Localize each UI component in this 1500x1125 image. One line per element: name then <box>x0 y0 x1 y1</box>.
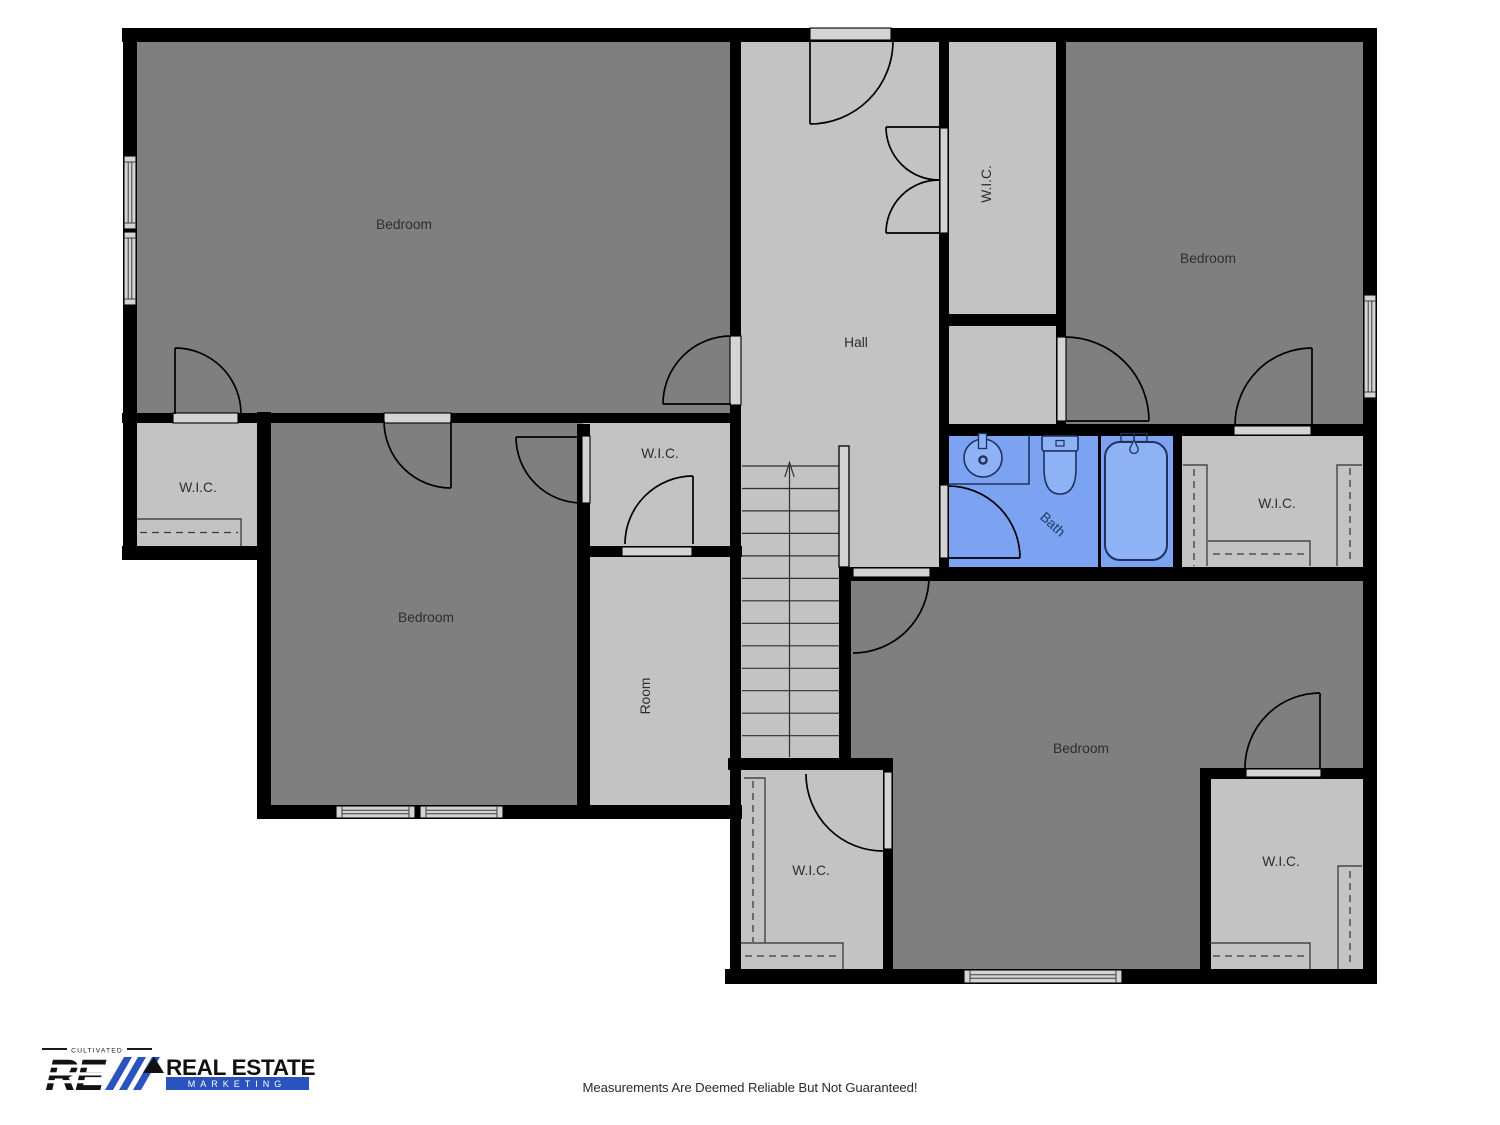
svg-text:Hall: Hall <box>844 335 868 350</box>
svg-text:Room: Room <box>638 678 653 715</box>
svg-text:Measurements Are Deemed Reliab: Measurements Are Deemed Reliable But Not… <box>583 1080 918 1095</box>
svg-text:W.I.C.: W.I.C. <box>792 863 830 878</box>
svg-text:Bedroom: Bedroom <box>1180 251 1236 266</box>
svg-text:W.I.C.: W.I.C. <box>641 446 679 461</box>
svg-text:W.I.C.: W.I.C. <box>979 165 994 203</box>
svg-text:REAL ESTATE: REAL ESTATE <box>166 1055 316 1080</box>
svg-text:Bedroom: Bedroom <box>398 610 454 625</box>
svg-text:Bedroom: Bedroom <box>1053 741 1109 756</box>
svg-text:Bedroom: Bedroom <box>376 217 432 232</box>
svg-text:MARKETING: MARKETING <box>188 1079 287 1089</box>
svg-text:W.I.C.: W.I.C. <box>179 480 217 495</box>
svg-text:RE: RE <box>41 1052 110 1100</box>
svg-text:W.I.C.: W.I.C. <box>1258 496 1296 511</box>
svg-text:W.I.C.: W.I.C. <box>1262 854 1300 869</box>
